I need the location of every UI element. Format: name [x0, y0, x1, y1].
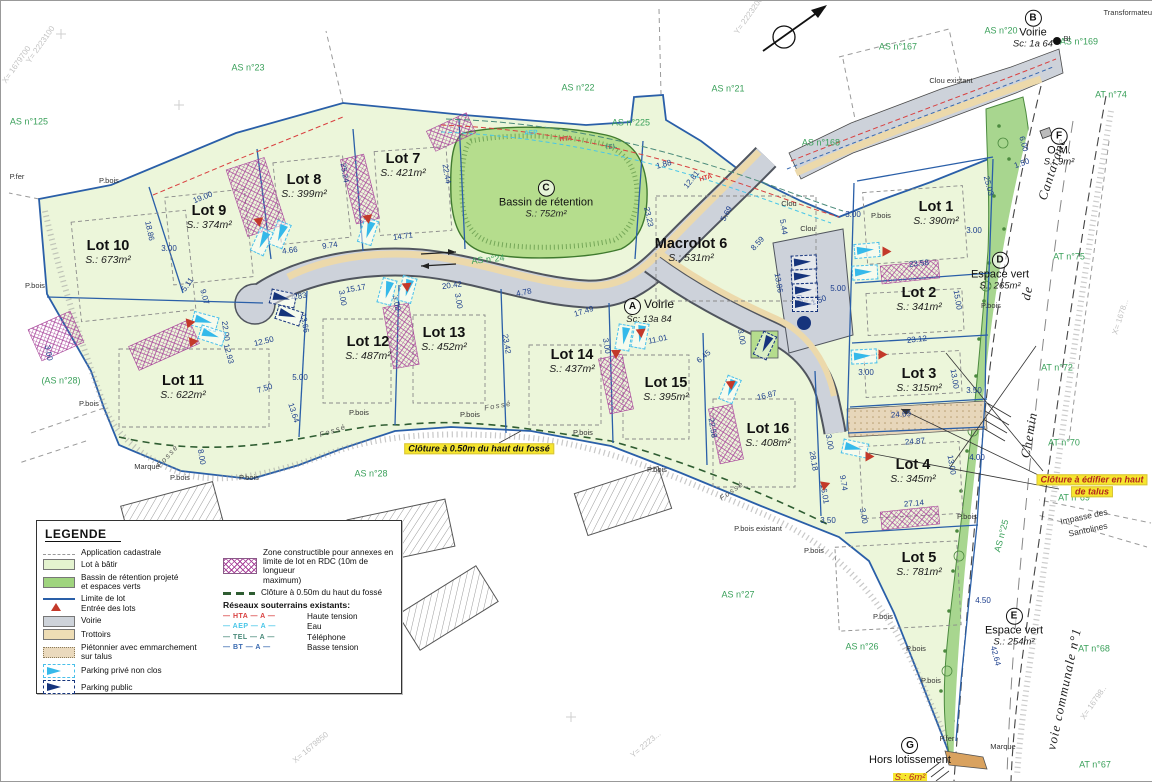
- legend-swatch-ppublic-icon: [43, 680, 75, 694]
- legend-item-label: Lot à bâtir: [81, 560, 117, 569]
- legend-item-label: Trottoirs: [81, 630, 111, 639]
- legend-network-label: Haute tension: [307, 612, 358, 621]
- legend-item-label: Bassin de rétention projeté et espaces v…: [81, 573, 178, 592]
- legend-swatch-cadastre-icon: [43, 554, 75, 555]
- hors-lotissement-hatch: [926, 763, 949, 781]
- legend-network-label: Téléphone: [307, 633, 346, 642]
- cadastral-subdivision-plan: AS n°125AS n°23AS n°22AS n°21AS n°225AS …: [0, 0, 1152, 782]
- legend-item-label: Zone constructible pour annexes en limit…: [263, 548, 395, 586]
- legend-item-label: Parking privé non clos: [81, 666, 162, 675]
- legend-swatch-basin-icon: [43, 577, 75, 588]
- legend-network-line-icon: — AEP — A —: [223, 623, 301, 630]
- legend-item: Lot à bâtir: [43, 559, 215, 570]
- legend-network-item: — TEL — A —Téléphone: [223, 633, 395, 642]
- legend-item: Application cadastrale: [43, 548, 215, 557]
- legend-item-label: Application cadastrale: [81, 548, 161, 557]
- legend-swatch-pieton-icon: [43, 647, 75, 658]
- legend-swatch-zone-icon: [223, 558, 257, 574]
- legend-item: Voirie: [43, 616, 215, 627]
- legend-network-label: Eau: [307, 622, 322, 631]
- legend-network-line-icon: — HTA — A —: [223, 613, 301, 620]
- legend-item: Parking public: [43, 680, 215, 694]
- legend-item-label: Voirie: [81, 616, 101, 625]
- legend-item-label: Clôture à 0.50m du haut du fossé: [261, 588, 382, 597]
- legend-item-label: Limite de lot Entrée des lots: [81, 594, 136, 613]
- legend-swatch-voirie-icon: [43, 616, 75, 627]
- bassin-de-retention: [451, 127, 647, 258]
- legend-item-label: Piétonnier avec emmarchement sur talus: [81, 643, 197, 662]
- legend-item-label: Parking public: [81, 683, 132, 692]
- bi-mark: [1053, 37, 1061, 45]
- legend-network-line-icon: — TEL — A —: [223, 634, 301, 641]
- legend-box: LEGENDE Application cadastraleLot à bâti…: [36, 520, 402, 694]
- legend-swatch-limite-icon: [43, 597, 75, 611]
- legend-item: Trottoirs: [43, 629, 215, 640]
- legend-item: Zone constructible pour annexes en limit…: [223, 548, 395, 586]
- legend-network-item: — BT — A —Basse tension: [223, 643, 395, 652]
- legend-item: Limite de lot Entrée des lots: [43, 594, 215, 613]
- legend-swatch-lot-icon: [43, 559, 75, 570]
- legend-network-item: — HTA — A —Haute tension: [223, 612, 395, 621]
- legend-item: Clôture à 0.50m du haut du fossé: [223, 588, 395, 597]
- legend-swatch-pprive-icon: [43, 664, 75, 678]
- legend-swatch-trottoirs-icon: [43, 629, 75, 640]
- legend-network-item: — AEP — A —Eau: [223, 622, 395, 631]
- legend-networks-title: Réseaux souterrains existants:: [223, 600, 395, 610]
- legend-item: Piétonnier avec emmarchement sur talus: [43, 643, 215, 662]
- legend-item: Bassin de rétention projeté et espaces v…: [43, 573, 215, 592]
- legend-swatch-cloture-icon: [223, 592, 255, 595]
- north-arrow-icon: [763, 5, 827, 51]
- legend-network-label: Basse tension: [307, 643, 358, 652]
- legend-title: LEGENDE: [45, 527, 121, 542]
- legend-network-line-icon: — BT — A —: [223, 644, 301, 651]
- legend-item: Parking privé non clos: [43, 664, 215, 678]
